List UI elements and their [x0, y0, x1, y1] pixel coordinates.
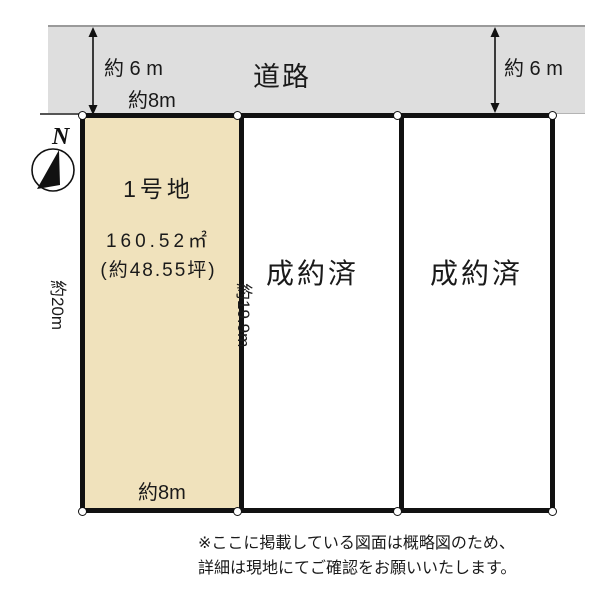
corner-marker [233, 507, 242, 516]
disclaimer-line-2: 詳細は現地にてご確認をお願いいたします。 [198, 556, 516, 581]
road-width-label-left: 約 6 m [104, 52, 163, 81]
road-width-arrow-right-icon [488, 27, 502, 113]
road-width-label-right: 約 6 m [504, 52, 563, 81]
road-width-arrow-left-icon [86, 27, 100, 115]
corner-marker [548, 507, 557, 516]
corner-marker [233, 111, 242, 120]
plot-1-name: 1号地 [80, 170, 237, 204]
corner-marker [393, 111, 402, 120]
leader-line [40, 113, 82, 115]
plot-divider-2 [399, 118, 404, 508]
plot-3-status: 成約済 [430, 252, 523, 292]
plot-1-area-tsubo: (約48.55坪) [80, 255, 237, 282]
depth-label-middle: 約19.9m [233, 283, 258, 347]
corner-marker [393, 507, 402, 516]
frontage-label-bottom: 約8m [138, 476, 186, 505]
frontage-label-top: 約8m [128, 84, 176, 113]
plot-2-status: 成約済 [266, 252, 359, 292]
road-label: 道路 [253, 55, 311, 94]
north-compass-icon: N [22, 118, 86, 198]
compass-north-label: N [51, 124, 71, 150]
plot-1-area-m2: 160.52㎡ [80, 226, 237, 253]
depth-label-left: 約20m [47, 280, 72, 330]
disclaimer-line-1: ※ここに掲載している図面は概略図のため、 [198, 531, 516, 556]
corner-marker [78, 111, 87, 120]
land-plot-diagram: 道路 約 6 m 約 6 m 約8m N 1号地 160.52㎡ (約48.55… [0, 0, 600, 600]
corner-marker [78, 507, 87, 516]
corner-marker [548, 111, 557, 120]
disclaimer-note: ※ここに掲載している図面は概略図のため、 詳細は現地にてご確認をお願いいたします… [198, 531, 516, 581]
